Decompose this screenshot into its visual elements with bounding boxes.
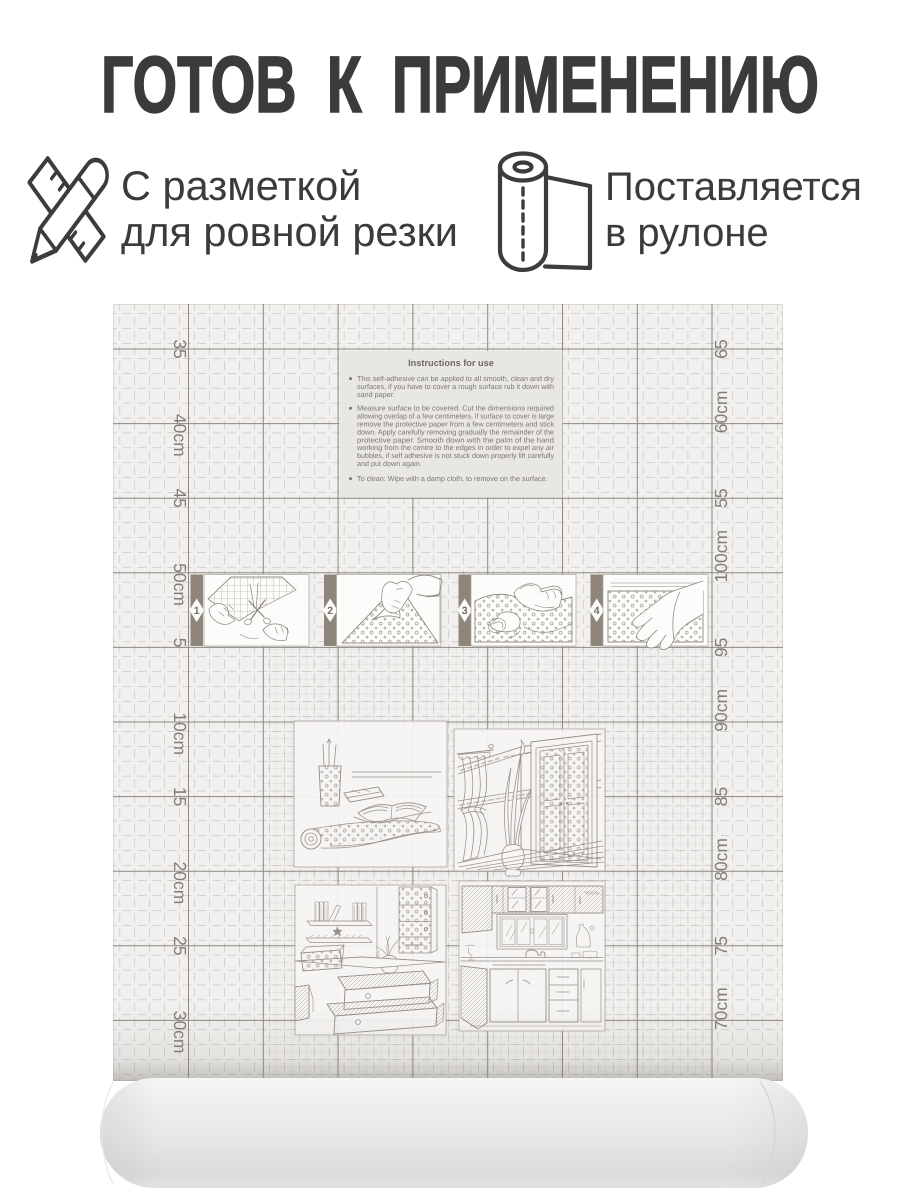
svg-text:ГОТОВ К ПРИМЕНЕНИЮ: ГОТОВ К ПРИМЕНЕНИЮ [101,40,819,129]
svg-text:80cm: 80cm [711,838,731,881]
svg-text:4: 4 [594,605,600,617]
svg-text:1: 1 [194,605,200,617]
svg-text:75: 75 [711,936,731,955]
svg-text:95: 95 [711,638,731,657]
svg-text:35: 35 [170,339,190,358]
svg-text:в рулоне: в рулоне [605,211,769,255]
svg-text:40cm: 40cm [170,414,190,457]
svg-text:60cm: 60cm [711,391,731,434]
svg-text:50cm: 50cm [170,563,190,606]
svg-text:90cm: 90cm [711,689,731,732]
svg-text:100cm: 100cm [711,530,731,583]
svg-text:15: 15 [170,787,190,806]
svg-text:20cm: 20cm [170,862,190,905]
svg-text:3: 3 [462,605,468,617]
svg-text:65: 65 [711,339,731,358]
svg-text:85: 85 [711,787,731,806]
svg-text:10cm: 10cm [170,712,190,755]
svg-text:Поставляется: Поставляется [605,165,862,209]
svg-text:sand paper.: sand paper. [357,390,395,399]
svg-text:25: 25 [170,936,190,955]
svg-text:2: 2 [327,605,333,617]
svg-text:To clean: Wipe with a damp clo: To clean: Wipe with a damp cloth, to rem… [357,474,548,483]
svg-text:and put down again.: and put down again. [357,459,422,468]
svg-text:45: 45 [170,489,190,508]
svg-text:5: 5 [170,638,190,648]
svg-text:С разметкой: С разметкой [121,162,361,209]
svg-text:55: 55 [711,488,731,507]
svg-text:для ровной резки: для ровной резки [121,208,458,255]
svg-text:Instructions for use: Instructions for use [408,358,494,368]
